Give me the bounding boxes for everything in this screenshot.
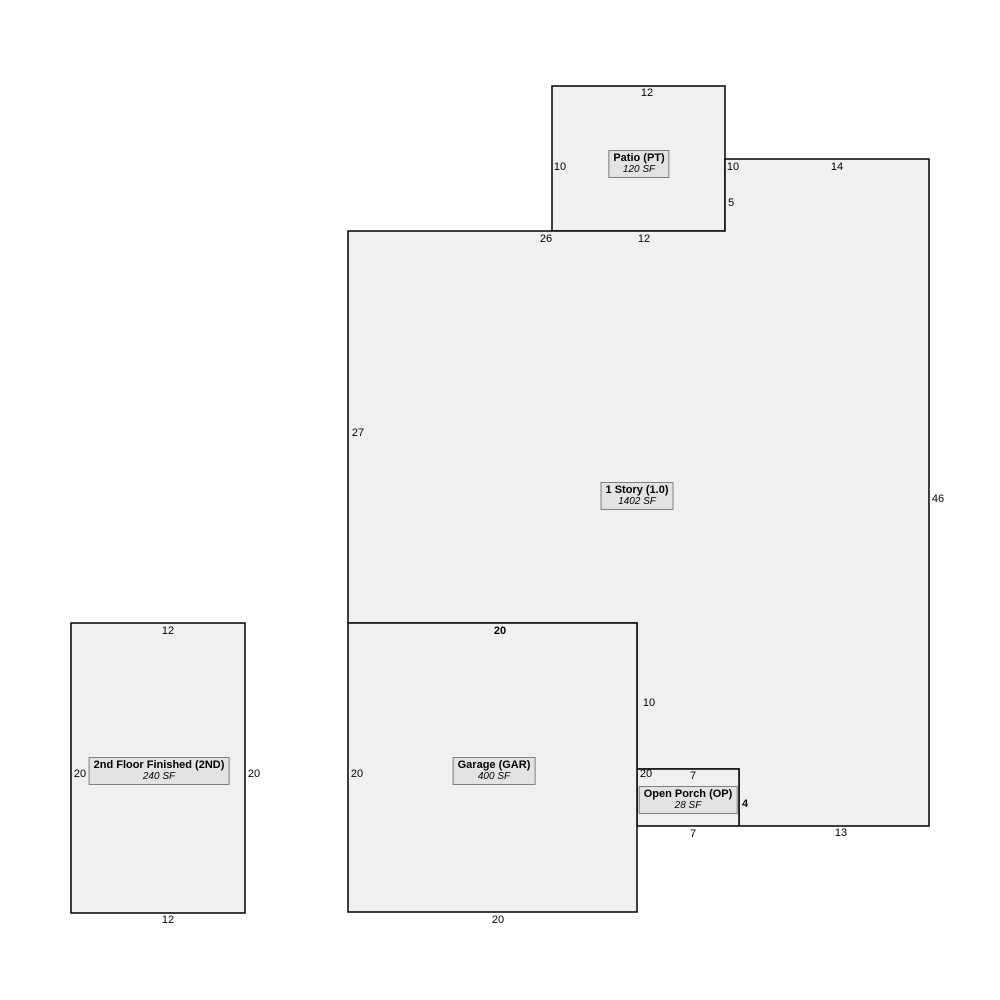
second-floor-label-area: 240 SF: [94, 771, 225, 782]
dim-one-story-jog: 5: [728, 197, 734, 209]
dim-open-porch-right: 4: [742, 798, 748, 810]
dim-garage-bottom: 20: [492, 914, 504, 926]
second-floor-label-title: 2nd Floor Finished (2ND): [94, 759, 225, 771]
dim-one-story-right: 46: [932, 493, 944, 505]
dim-patio-right: 10: [727, 161, 739, 173]
dim-one-story-side: 10: [643, 697, 655, 709]
dim-second-floor-left: 20: [74, 768, 86, 780]
dim-open-porch-bottom: 7: [690, 828, 696, 840]
dim-patio-left: 10: [554, 161, 566, 173]
patio-label-area: 120 SF: [613, 164, 664, 175]
garage-label-area: 400 SF: [458, 771, 531, 782]
dim-one-story-top-right: 14: [831, 161, 843, 173]
dim-open-porch-top: 7: [690, 770, 696, 782]
second-floor-label: 2nd Floor Finished (2ND) 240 SF: [89, 757, 230, 785]
garage-label: Garage (GAR) 400 SF: [453, 757, 536, 785]
floorplan-sketch-canvas: 12 10 10 12 26 5 14 46 27 10 13 20 20 20…: [0, 0, 1000, 1000]
open-porch-label-title: Open Porch (OP): [644, 788, 733, 800]
dim-one-story-left: 27: [352, 427, 364, 439]
open-porch-label-area: 28 SF: [644, 800, 733, 811]
dim-second-floor-top: 12: [162, 625, 174, 637]
dim-garage-left: 20: [351, 768, 363, 780]
garage-label-title: Garage (GAR): [458, 759, 531, 771]
one-story-label: 1 Story (1.0) 1402 SF: [601, 482, 674, 510]
dim-second-floor-bottom: 12: [162, 914, 174, 926]
dim-one-story-top: 26: [540, 233, 552, 245]
dim-garage-right: 20: [640, 768, 652, 780]
dim-second-floor-right: 20: [248, 768, 260, 780]
dim-one-story-bottom-right: 13: [835, 827, 847, 839]
dim-patio-bottom: 12: [638, 233, 650, 245]
open-porch-label: Open Porch (OP) 28 SF: [639, 786, 738, 814]
one-story-label-title: 1 Story (1.0): [606, 484, 669, 496]
dim-patio-top: 12: [641, 87, 653, 99]
dim-garage-top: 20: [494, 625, 506, 637]
sketch-shapes: [0, 0, 1000, 1000]
one-story-label-area: 1402 SF: [606, 496, 669, 507]
patio-label-title: Patio (PT): [613, 152, 664, 164]
patio-label: Patio (PT) 120 SF: [608, 150, 669, 178]
